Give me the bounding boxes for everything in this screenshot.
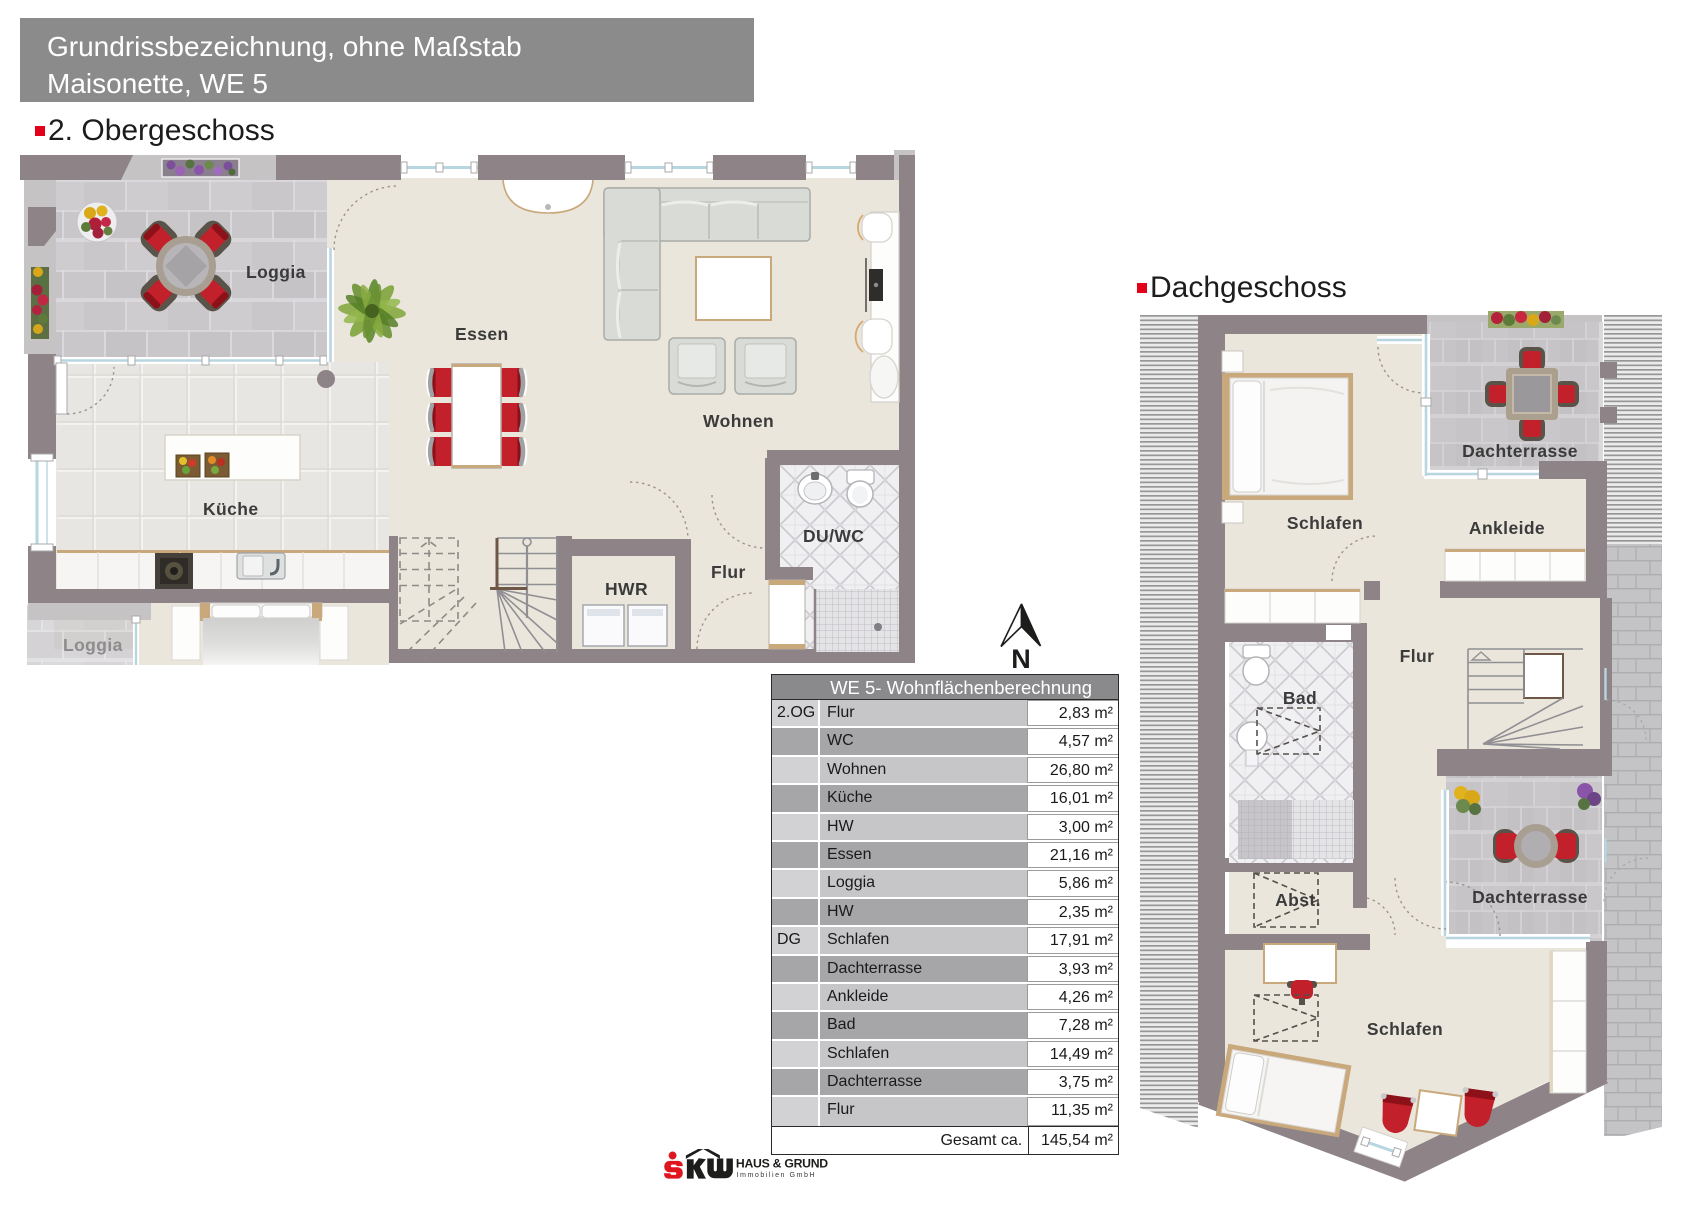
svg-text:Essen: Essen: [455, 324, 509, 344]
svg-text:HAUS & GRUND: HAUS & GRUND: [736, 1156, 828, 1170]
svg-text:Flur: Flur: [1400, 646, 1435, 666]
svg-text:Dachterrasse: Dachterrasse: [1462, 441, 1578, 461]
svg-text:Dachterrasse: Dachterrasse: [1472, 887, 1588, 907]
svg-text:Loggia: Loggia: [246, 262, 306, 282]
svg-text:Ankleide: Ankleide: [1469, 518, 1545, 538]
svg-text:Schlafen: Schlafen: [1367, 1019, 1443, 1039]
svg-text:Schlafen: Schlafen: [1287, 513, 1363, 533]
svg-text:HWR: HWR: [605, 579, 648, 599]
svg-text:Küche: Küche: [203, 499, 258, 519]
svg-text:N: N: [1011, 644, 1031, 673]
svg-text:Immobilien GmbH: Immobilien GmbH: [737, 1171, 816, 1179]
svg-text:Wohnen: Wohnen: [703, 411, 774, 431]
svg-text:Flur: Flur: [711, 562, 746, 582]
svg-text:DU/WC: DU/WC: [803, 526, 864, 546]
svg-text:Loggia: Loggia: [63, 635, 123, 655]
svg-text:Abst.: Abst.: [1275, 890, 1321, 910]
svg-text:Bad: Bad: [1283, 688, 1317, 708]
